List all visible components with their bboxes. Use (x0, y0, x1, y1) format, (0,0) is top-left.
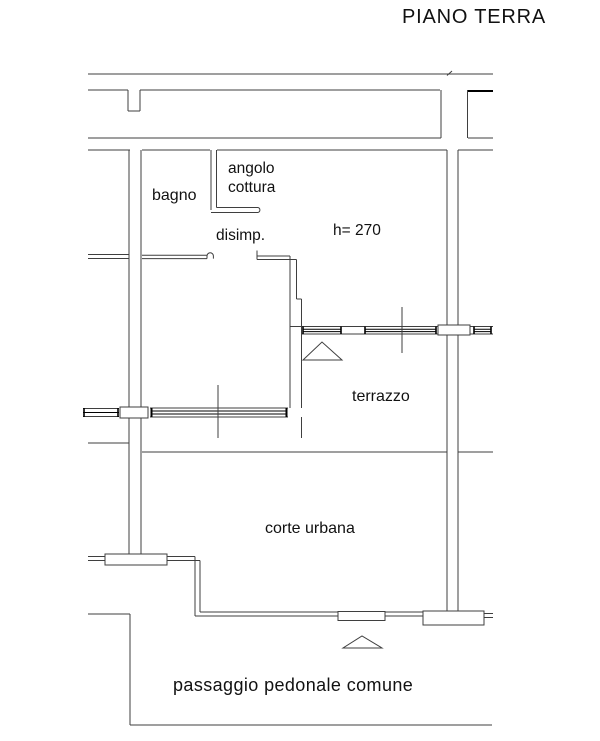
building-top-outline (88, 71, 493, 138)
gate-swing-triangle (343, 636, 382, 648)
floorplan-page: PIANO TERRA (0, 0, 600, 741)
label-height-note: h= 270 (333, 222, 381, 239)
label-corte-urbana: corte urbana (265, 520, 355, 537)
livingroom-east-wall (290, 256, 302, 438)
break-tick (447, 71, 452, 76)
label-bagno: bagno (152, 187, 197, 204)
counter-round-end (258, 208, 260, 213)
east-party-wall (423, 150, 484, 625)
floorplan-drawing: PIANO TERRA (0, 0, 600, 741)
passage-boundary (88, 614, 492, 725)
label-passaggio: passaggio pedonale comune (173, 675, 413, 695)
door-jamb-knob (207, 253, 213, 259)
label-cottura: cottura (228, 179, 276, 196)
label-angolo: angolo (228, 160, 275, 177)
hallway-wall (88, 251, 297, 260)
label-disimpegno: disimp. (216, 227, 265, 244)
wall-end-cap (423, 611, 484, 625)
livingroom-south-window (150, 385, 288, 438)
label-terrazzo: terrazzo (352, 388, 410, 405)
page-title: PIANO TERRA (402, 6, 546, 28)
gate-leaf (338, 612, 385, 621)
west-party-wall (105, 150, 167, 565)
neighbor-window (83, 408, 119, 417)
door-swing-triangle-terrace (303, 342, 342, 360)
wall-pillar (120, 407, 148, 418)
wall-pillar (105, 554, 167, 565)
wall-junction (438, 325, 470, 335)
